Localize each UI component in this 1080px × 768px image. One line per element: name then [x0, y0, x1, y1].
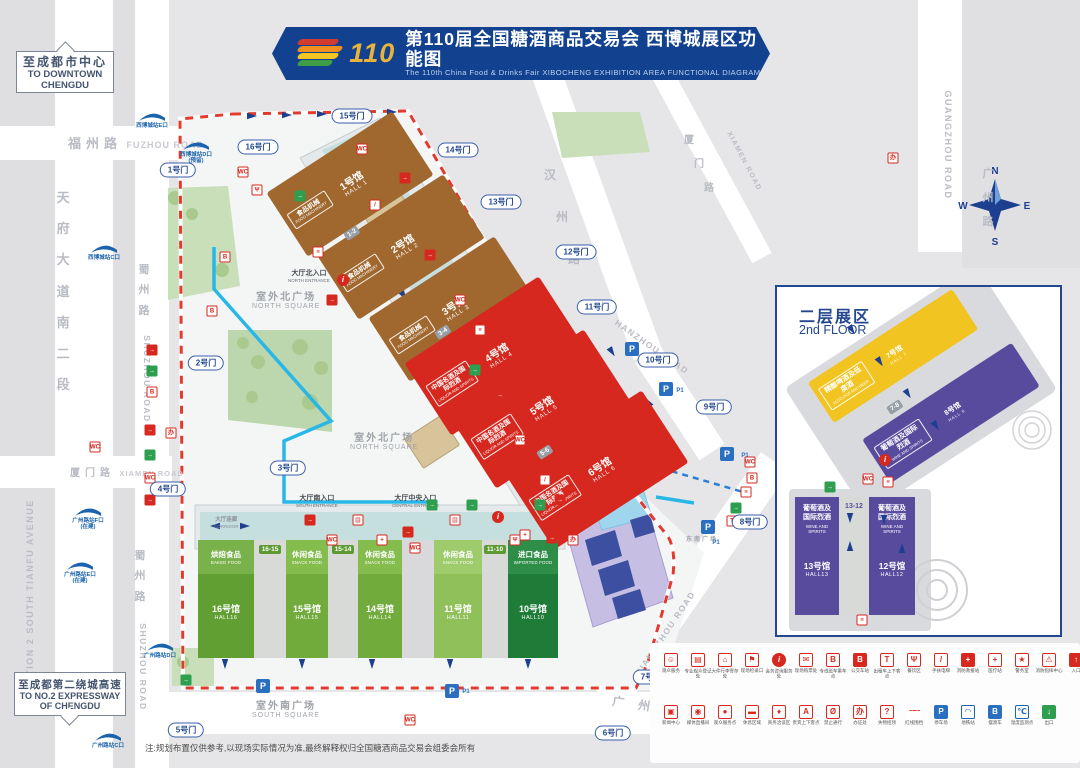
legend-item: ◠地铁站 — [955, 705, 981, 727]
exhibition-map: N S E W 110 第110届全国糖酒商品交易会 西博城展区功能图 The … — [0, 0, 1080, 768]
legend-item: B摆渡车 — [982, 705, 1008, 727]
road-label-xiamen-ne-cn-2: 路 — [704, 179, 714, 194]
hall-6-number: 6号馆HALL 6 — [555, 433, 647, 503]
info-icon: i — [772, 653, 786, 667]
parking-icon-5: P — [256, 679, 270, 693]
exit-icon: → — [147, 366, 158, 377]
legend-item: +医疗站 — [982, 653, 1008, 681]
connector-13-12: 13-12 — [839, 497, 869, 615]
entrance-icon: → — [327, 295, 338, 306]
stairs-icon: ≡ — [313, 247, 324, 258]
med-icon: + — [377, 535, 388, 546]
connector-15-14: 15-14 — [328, 540, 358, 658]
label-corridor: 大厅连廊CORRIDOR — [214, 517, 239, 529]
shuttle-bus-icon: B — [826, 653, 840, 667]
legend-item: i会务咨询服务处 — [766, 653, 792, 681]
registration-icon: ▤ — [691, 653, 705, 667]
legend-item: ✉现场购票处 — [793, 653, 819, 681]
hall-13-number: 13号馆 — [795, 560, 839, 572]
ticket-icon: ✉ — [799, 653, 813, 667]
wc-icon: WC — [745, 457, 756, 468]
taxi-icon: T — [880, 653, 894, 667]
exit-icon: → — [731, 503, 742, 514]
road-label-shuzhou-cn-2: 蜀 州 路 — [134, 546, 146, 607]
info-icon: i — [492, 511, 504, 523]
road-label-guangzhou-cn-ne: 广 州 路 — [982, 162, 994, 235]
stairs-icon: ≡ — [857, 615, 868, 626]
hall-12-number: 12号馆 — [869, 560, 915, 572]
page-title: 第110届全国糖酒商品交易会 西博城展区功能图 — [405, 29, 770, 69]
gate-14: 14号门 — [438, 143, 479, 158]
wc-icon: WC — [357, 144, 368, 155]
gate-2: 2号门 — [188, 356, 224, 371]
gate-8: 8号门 — [732, 515, 768, 530]
hall-14: 休闲食品SNACK FOOD14号馆HALL14 — [358, 540, 402, 658]
entrance-icon: ↑ — [1069, 653, 1080, 667]
no-pass-icon: Ø — [826, 705, 840, 719]
gate-15: 15号门 — [332, 109, 373, 124]
label-south-square: 室外南广场SOUTH SQUARE — [252, 697, 320, 719]
gate-11: 11号门 — [577, 300, 617, 315]
rest-area-icon: ▬ — [745, 705, 759, 719]
red-fence-icon: ╌╌ — [907, 705, 921, 719]
parking-icon-6: P — [445, 684, 459, 698]
hall-11-category: 休闲食品SNACK FOOD — [434, 540, 482, 574]
legend-item: ↑入口 — [1063, 653, 1080, 681]
entrance-icon: → — [145, 425, 156, 436]
entrance-icon: → — [145, 495, 156, 506]
entrance-icon: → — [403, 527, 414, 538]
label-north-entrance: 大厅北入口NORTH ENTRANCE — [288, 270, 330, 284]
legend-item: ?失物招领 — [874, 705, 900, 727]
entrance-icon: → — [425, 250, 436, 261]
parking-icon-4: P — [701, 520, 715, 534]
hall-12-category: 葡萄酒及国际烈酒 — [869, 505, 915, 523]
exit-icon: → — [181, 675, 192, 686]
title-banner: 110 第110届全国糖酒商品交易会 西博城展区功能图 The 110th Ch… — [272, 27, 770, 80]
metro-icon: ◠ — [961, 705, 975, 719]
legend-item: P停车场 — [928, 705, 954, 727]
page-subtitle: The 110th China Food & Drinks Fair XIBOC… — [405, 69, 770, 78]
info-icon: i — [879, 454, 891, 466]
gate-10: 10号门 — [638, 353, 679, 368]
connector-16-15: 16-15 — [254, 540, 286, 658]
gate-16: 16号门 — [238, 140, 279, 155]
wc-icon: WC — [327, 535, 338, 546]
road-label-hanzhou-cn-0: 汉 — [544, 166, 556, 183]
legend-item: ◉媒体直播间 — [685, 705, 711, 727]
metro-station-1: 西博城站E口 — [124, 111, 180, 129]
hall-16: 烘焙食品BAKED FOOD16号馆HALL16 — [198, 540, 254, 658]
badge-icon: 办 — [568, 535, 579, 546]
parking-icon-1: P — [625, 342, 639, 356]
svg-text:S: S — [992, 237, 999, 248]
fair-logo-icon — [298, 39, 341, 69]
wc-icon: WC — [863, 474, 874, 485]
legend: ☺观众服务▤专业观众登记处⌂大件行李寄存处⚑现场检录口i会务咨询服务处✉现场购票… — [650, 643, 1080, 763]
hall-13-category: 葡萄酒及国际烈酒 — [795, 505, 839, 523]
road-label-xiamen-ne-cn-1: 门 — [694, 155, 704, 170]
legend-item: 办办证处 — [847, 705, 873, 727]
sign-downtown-en: TO DOWNTOWN CHENGDU — [17, 70, 113, 91]
legend-item: ●观众服务点 — [712, 705, 738, 727]
exit-icon: → — [295, 191, 306, 202]
entrance-icon: → — [495, 390, 506, 401]
wc-icon: WC — [410, 543, 421, 554]
legend-item: T出租车上下客点 — [874, 653, 900, 681]
escalator-icon: / — [934, 653, 948, 667]
hall-10: 进口食品IMPORTED FOOD10号馆HALL10 — [508, 540, 558, 658]
exit-icon: → — [427, 500, 438, 511]
hall-16-number: 16号馆HALL16 — [212, 602, 240, 621]
legend-item: ℃温度监测点 — [1009, 705, 1035, 727]
legend-item: ▣新闻中心 — [658, 705, 684, 727]
food-icon: Ψ — [252, 185, 263, 196]
hall-1-number: 1号馆HALL 1 — [309, 149, 396, 216]
bus-stop-icon: B — [853, 653, 867, 667]
exit-icon: → — [145, 450, 156, 461]
stairs-icon: ≡ — [883, 477, 894, 488]
fair-number: 110 — [349, 38, 395, 69]
wc-icon: WC — [515, 435, 526, 446]
checkin-icon: ⚑ — [745, 653, 759, 667]
hall-15: 休闲食品SNACK FOOD15号馆HALL15 — [286, 540, 328, 658]
connector-11-10: 11-10 — [482, 540, 508, 658]
exit-icon: → — [825, 482, 836, 493]
dining-icon: Ψ — [907, 653, 921, 667]
legend-item: Ψ餐饮区 — [901, 653, 927, 681]
vip-icon: A — [799, 705, 813, 719]
legend-item: ★警务室 — [1009, 653, 1035, 681]
road-label-hanzhou-cn-1: 州 — [556, 208, 568, 225]
parking-sub-label-3: P1 — [462, 689, 469, 695]
sign-expressway-cn: 至成都第二绕城高速 — [15, 677, 125, 692]
legend-item: ╌╌红线围挡 — [901, 705, 927, 727]
metro-station-2: 西博城站D口(预留) — [168, 140, 224, 164]
reg-icon: ▤ — [450, 515, 461, 526]
exit-icon: → — [470, 365, 481, 376]
gate-13: 13号门 — [481, 195, 522, 210]
legend-item: ♦商务洽谈区 — [766, 705, 792, 727]
bus-icon: B — [207, 306, 218, 317]
entrance-icon: → — [305, 515, 316, 526]
info-icon: i — [337, 274, 349, 286]
wc-icon: WC — [90, 442, 101, 453]
stairs-icon: ≡ — [741, 487, 752, 498]
road-label-shuzhou-en-2: SHUZHOU ROAD — [138, 612, 148, 722]
parking-icon: P — [934, 705, 948, 719]
legend-item: B专线班车乘车点 — [820, 653, 846, 681]
gate-3: 3号门 — [270, 461, 306, 476]
metro-station-5: 广州路站E口(在建) — [52, 560, 108, 584]
bus-icon: B — [220, 252, 231, 263]
label-south-entrance: 大厅南入口SOUTH ENTRANCE — [296, 495, 338, 509]
legend-item: /手扶电梯 — [928, 653, 954, 681]
badge-icon: 办 — [888, 153, 899, 164]
wc-icon: WC — [405, 715, 416, 726]
bus-icon: B — [747, 473, 758, 484]
exit-icon: → — [467, 500, 478, 511]
svg-text:W: W — [958, 201, 968, 212]
gate-9: 9号门 — [696, 400, 732, 415]
sign-downtown: 至成都市中心 TO DOWNTOWN CHENGDU — [16, 51, 114, 93]
legend-item: +消防救援站 — [955, 653, 981, 681]
gate-1: 1号门 — [160, 163, 196, 178]
entrance-icon: → — [400, 173, 411, 184]
visitor-service-icon: ☺ — [664, 653, 678, 667]
metro-station-7: 广州路站C口 — [80, 731, 136, 749]
exit-icon: ↓ — [1042, 705, 1056, 719]
reg-icon: ▤ — [353, 515, 364, 526]
legend-item: ⚠消防指挥中心 — [1036, 653, 1062, 681]
service-point-icon: ● — [718, 705, 732, 719]
hall-10-number: 10号馆HALL10 — [519, 602, 547, 621]
luggage-icon: ⌂ — [718, 653, 732, 667]
gate-12: 12号门 — [556, 245, 597, 260]
metro-station-3: 西博城站C口 — [76, 243, 132, 261]
road-label-shuzhou-en-1: SHUZHOU ROAD — [142, 324, 152, 434]
parking-icon-2: P — [659, 382, 673, 396]
parking-icon-3: P — [720, 447, 734, 461]
entrance-icon: → — [147, 345, 158, 356]
hall-15-category: 休闲食品SNACK FOOD — [286, 540, 328, 574]
metro-station-6: 广州路站D口 — [132, 641, 188, 659]
hall-gap-strip — [402, 540, 434, 658]
legend-item: ⚑现场检录口 — [739, 653, 765, 681]
bus-icon: B — [147, 387, 158, 398]
gate-4: 4号门 — [150, 482, 186, 497]
legend-item: Ø禁止通行 — [820, 705, 846, 727]
exit-icon: → — [535, 500, 546, 511]
hall-13: 葡萄酒及国际烈酒WINE ANDSPIRITS13号馆HALL13 — [795, 497, 839, 615]
entrance-icon: → — [555, 495, 566, 506]
road-label-tianfu-cn: 天 府 大 道 南 二 段 — [56, 182, 70, 400]
road-label-shuzhou-cn-1: 蜀 州 路 — [138, 260, 150, 321]
stairs-icon: ≡ — [475, 325, 486, 336]
live-studio-icon: ◉ — [691, 705, 705, 719]
legend-item: ⌂大件行李寄存处 — [712, 653, 738, 681]
rescue-icon: + — [961, 653, 975, 667]
legend-item: ▬休息区域 — [739, 705, 765, 727]
parking-sub-label-4: P1 — [712, 540, 719, 546]
road-label-guangzhou-en-ne: GUANGZHOU ROAD — [943, 70, 953, 220]
hall-11-number: 11号馆HALL11 — [444, 602, 472, 621]
hall-14-number: 14号馆HALL14 — [366, 602, 394, 621]
press-center-icon: ▣ — [664, 705, 678, 719]
fire-command-icon: ⚠ — [1042, 653, 1056, 667]
badge-icon: 办 — [166, 428, 177, 439]
legend-item: ↓出口 — [1036, 705, 1062, 727]
business-talk-icon: ♦ — [772, 705, 786, 719]
esc-icon: / — [540, 475, 551, 486]
wc-icon: WC — [455, 295, 466, 306]
hall-15-number: 15号馆HALL15 — [293, 602, 321, 621]
med-icon: + — [520, 530, 531, 541]
hall-16-category: 烘焙食品BAKED FOOD — [198, 540, 254, 574]
disclaimer-note: 注:规划布置仅供参考,以现场实际情况为准,最终解释权归全国糖酒商品交易会组委会所… — [145, 742, 475, 754]
gate-6: 6号门 — [595, 726, 631, 741]
medical-icon: + — [988, 653, 1002, 667]
sign-expressway: 至成都第二绕城高速 TO NO.2 EXPRESSWAY OF CHENGDU — [14, 672, 126, 716]
svg-text:E: E — [1024, 201, 1031, 212]
lost-found-icon: ? — [880, 705, 894, 719]
wc-icon: WC — [238, 167, 249, 178]
hall-11: 休闲食品SNACK FOOD11号馆HALL11 — [434, 540, 482, 658]
road-label-xiamen-ne-cn-0: 厦 — [684, 131, 694, 146]
label-north-square-1: 室外北广场NORTH SQUARE — [252, 288, 320, 310]
ferry-bus-icon: B — [988, 705, 1002, 719]
badge-office-icon: 办 — [853, 705, 867, 719]
legend-item: ☺观众服务 — [658, 653, 684, 681]
hall-5-number: 5号馆HALL 5 — [497, 372, 589, 442]
entrance-icon: → — [547, 533, 558, 544]
temperature-icon: ℃ — [1015, 705, 1029, 719]
legend-item: A贵宾上下客点 — [793, 705, 819, 727]
label-north-square-2: 室外北广场NORTH SQUARE — [350, 429, 418, 451]
legend-item: B公交车站 — [847, 653, 873, 681]
metro-station-4: 广州路站F口(在建) — [60, 506, 116, 530]
hall-12: 葡萄酒及国际烈酒WINE ANDSPIRITS12号馆HALL12 — [869, 497, 915, 615]
road-label-xiamen-west: 厦门路 XIAMEN ROAD — [70, 463, 184, 481]
hall-2-number: 2号馆HALL 2 — [360, 212, 447, 279]
legend-item: ▤专业观众登记处 — [685, 653, 711, 681]
gate-5: 5号门 — [168, 723, 204, 738]
police-icon: ★ — [1015, 653, 1029, 667]
esc-icon: / — [370, 200, 381, 211]
parking-sub-label-1: P1 — [676, 388, 683, 394]
